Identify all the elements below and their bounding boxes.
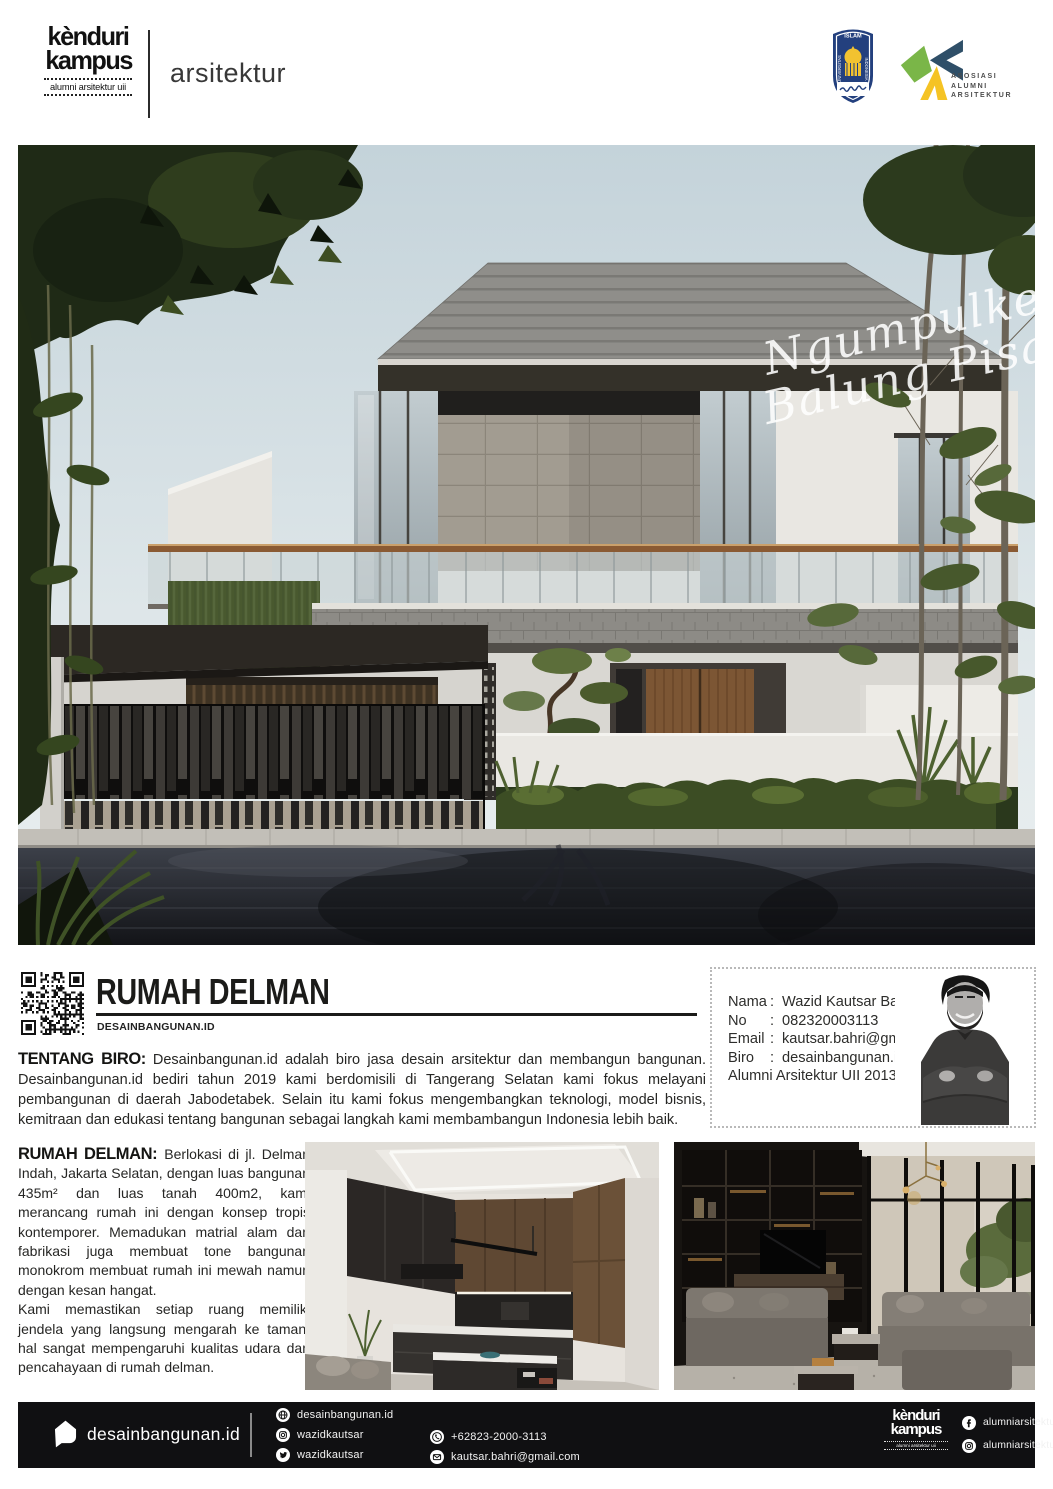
project-subtitle: DESAINBANGUNAN.ID [97,1021,215,1033]
facebook-icon [962,1416,976,1430]
footer-bar: desainbangunan.id desainbangunan.id wazi… [18,1402,1035,1468]
uii-university-logo: ISLAM UNIVERSITAS INDONESIA [828,24,878,106]
poster-page: kènduri kampus alumni arsitektur uii ars… [0,0,1053,1489]
footer-alumni-instagram-row: alumniarsitekturuii [962,1438,1053,1453]
brand-word-2: kampus [45,48,130,72]
instagram-icon [962,1439,976,1453]
street [18,829,1035,945]
description-para2: Kami memastikan setiap ruang memiliki je… [18,1300,310,1378]
title-underline [96,1013,697,1016]
uii-text-right: INDONESIA [864,57,869,80]
instagram-icon [276,1428,290,1442]
footer-instagram-row: wazidkautsar [276,1427,393,1442]
footer-email-row: kautsar.bahri@gmail.com [430,1449,580,1464]
about-biro-paragraph: TENTANG BIRO:Desainbangunan.id adalah bi… [18,1049,706,1130]
living-room-interior-render [674,1142,1035,1390]
brand-tagline: alumni arsitektur uii [44,78,132,96]
footer-brand-text: desainbangunan.id [87,1424,240,1445]
portrait-photo [895,970,1033,1125]
house-exterior-render: Ngumpulke Balung Pisah [18,145,1035,945]
aaa-logo-text: ASOSIASI ALUMNI ARSITEKTUR [951,72,1012,101]
division-title: arsitektur [170,58,286,89]
footer-kenduri-logo: kènduri kampus alumni arsitektur uii [884,1409,948,1450]
uii-text-top: ISLAM [844,34,862,40]
description-para1: Berlokasi di jl. Delman Indah, Jakarta S… [18,1146,310,1298]
qr-code [21,972,84,1035]
footer-links: desainbangunan.id wazidkautsar wazidkaut… [276,1407,393,1462]
contact-phone: 082320003113 [782,1012,878,1031]
email-icon [430,1450,444,1464]
footer-whatsapp-row: +62823-2000-3113 [430,1429,580,1444]
project-description: RUMAH DELMAN:Berlokasi di jl. Delman Ind… [18,1145,310,1378]
project-title: RUMAH DELMAN [96,974,330,1010]
contact-card: Nama: Wazid Kautsar Bahri No: 0823200031… [710,967,1036,1128]
whatsapp-icon [430,1430,444,1444]
footer-twitter-row: wazidkautsar [276,1447,393,1462]
uii-text-left: UNIVERSITAS [837,55,842,83]
description-label: RUMAH DELMAN: [18,1145,164,1163]
about-label: TENTANG BIRO: [18,1050,153,1068]
aaa-green-shape [901,46,932,83]
footer-brand: desainbangunan.id [54,1420,240,1448]
footer-website-row: desainbangunan.id [276,1407,393,1422]
header-divider [148,30,150,118]
contact-biro: desainbangunan.id [782,1049,905,1068]
twitter-icon [276,1448,290,1462]
footer-contacts: +62823-2000-3113 kautsar.bahri@gmail.com [430,1429,580,1464]
front-gate [40,625,488,835]
website-icon [276,1408,290,1422]
kenduri-kampus-logo: kènduri kampus alumni arsitektur uii [44,24,132,96]
footer-alumni-links: alumniarsitekturuii alumniarsitekturuii [962,1415,1053,1453]
desainbangunan-logo-icon [54,1420,77,1448]
kitchen-interior-render [305,1142,659,1390]
footer-divider [250,1413,252,1457]
footer-facebook-row: alumniarsitekturuii [962,1415,1053,1430]
